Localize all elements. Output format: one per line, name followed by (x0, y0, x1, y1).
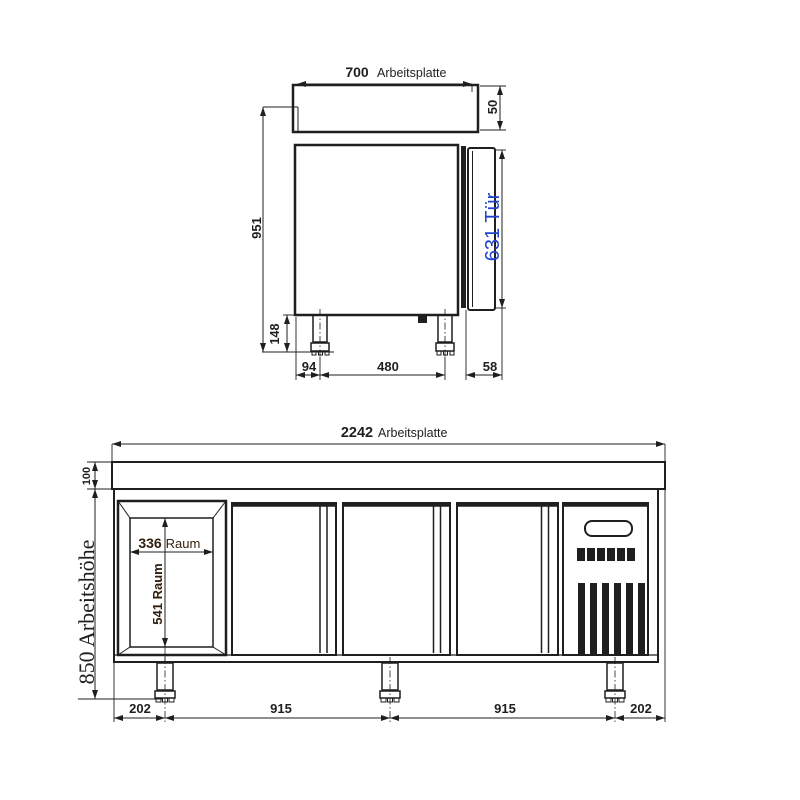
front-dim-202-left: 202 (129, 701, 151, 716)
side-door-height: 631 Tür (482, 192, 504, 261)
front-dim-915-left: 915 (270, 701, 292, 716)
compartment-height-value: 541 Raum (150, 563, 165, 624)
side-view: 700 Arbeitsplatte 50 951 631 Tür (249, 64, 506, 380)
side-worktop-thickness: 50 (485, 100, 500, 114)
side-door-depth: 58 (483, 359, 497, 374)
underside-block (418, 315, 427, 323)
side-leg-spacing: 480 (377, 359, 399, 374)
machine-compartment (563, 503, 648, 655)
compartment-width-label: Raum (166, 536, 201, 551)
control-buttons (577, 548, 635, 561)
compartment-width-value: 336 (138, 535, 162, 551)
front-door-2 (232, 503, 336, 655)
side-worktop-width-value: 700 (345, 64, 369, 80)
front-view: 2242 Arbeitsplatte 100 336 Raum (74, 425, 665, 722)
front-door-4 (457, 503, 558, 655)
front-door-1 (118, 501, 226, 655)
front-dim-202-right: 202 (630, 701, 652, 716)
side-front-leg-offset: 94 (302, 359, 317, 374)
technical-drawing-page: 700 Arbeitsplatte 50 951 631 Tür (0, 0, 800, 800)
side-door-hinge-bar (461, 146, 466, 308)
side-worktop-width-label: Arbeitsplatte (377, 66, 447, 80)
front-dim-915-right: 915 (494, 701, 516, 716)
front-worktop-width-value: 2242 (341, 425, 373, 441)
control-display-slot (585, 521, 632, 536)
side-cabinet-body (295, 145, 458, 315)
side-total-height: 951 (249, 217, 264, 239)
front-leg-center (380, 657, 400, 722)
side-leg-height: 148 (268, 324, 282, 345)
front-door-3 (343, 503, 450, 655)
refrigerated-counter-drawing: 700 Arbeitsplatte 50 951 631 Tür (0, 0, 800, 800)
front-worktop-band (112, 462, 665, 489)
front-band-height: 100 (81, 467, 93, 485)
working-height-label: 850 Arbeitshöhe (74, 540, 99, 685)
front-cabinet-body (114, 489, 658, 662)
ventilation-grille (578, 583, 645, 655)
front-leg-right (605, 657, 625, 722)
front-worktop-width-label: Arbeitsplatte (378, 426, 448, 440)
front-leg-left (155, 657, 175, 722)
side-worktop (293, 85, 478, 132)
